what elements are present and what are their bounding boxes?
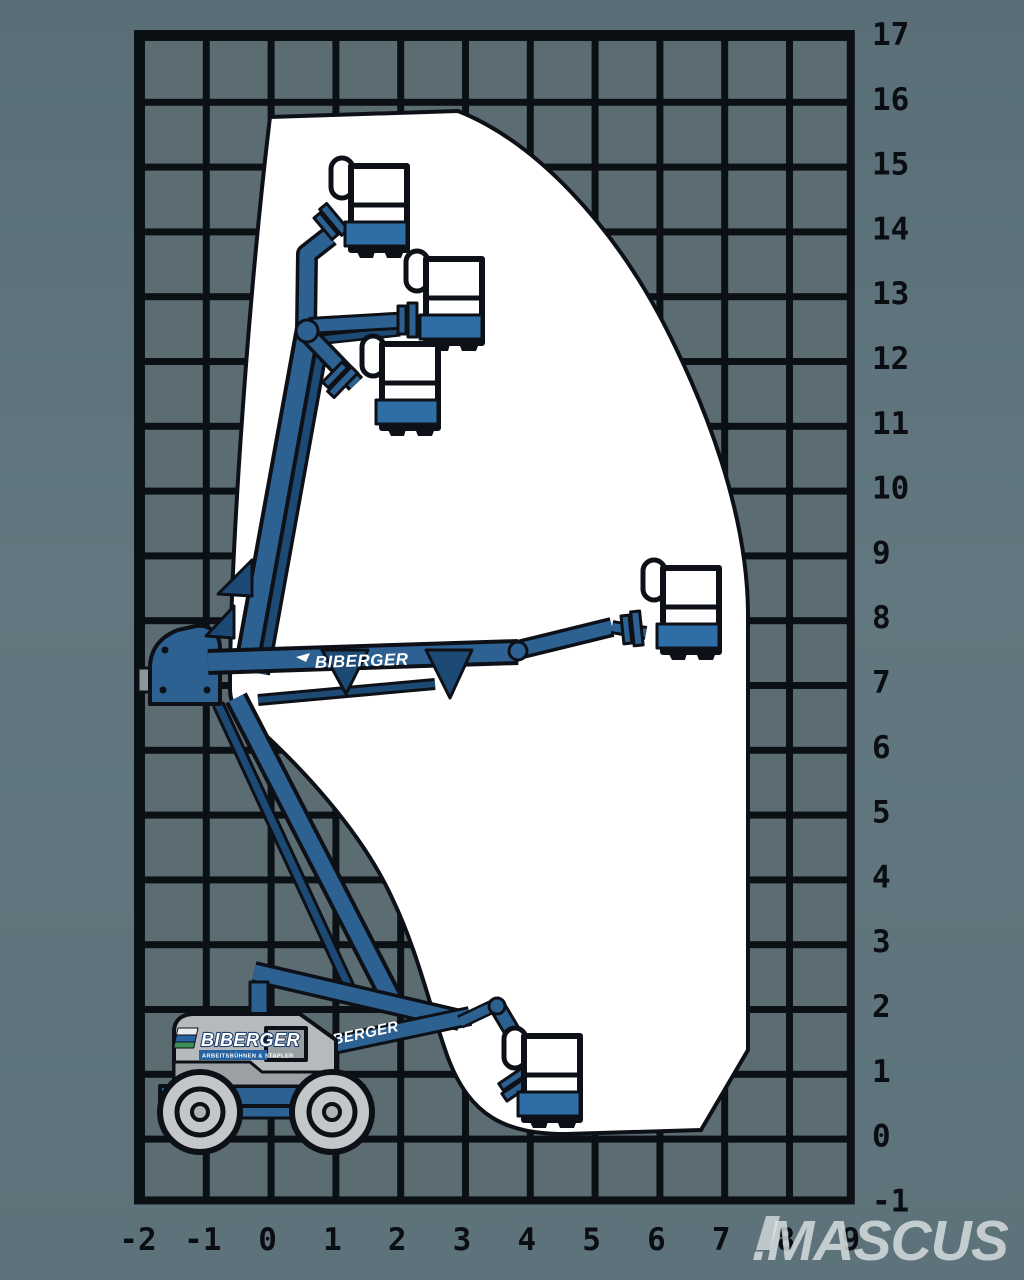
biberger-chassis-logo: BIBERGER [201, 1030, 300, 1050]
biberger-tagline: ARBEITSBÜHNEN & STAPLER [202, 1053, 294, 1060]
axis-label: 15 [872, 147, 909, 183]
watermark-text: .MASCUS [752, 1209, 1009, 1273]
reach-diagram-page: BIBERGER BIBERGER ARBEITSB [0, 0, 1024, 1280]
biberger-emblem [174, 1028, 198, 1048]
axis-label: 4 [872, 859, 891, 895]
axis-label: 1 [323, 1222, 342, 1258]
axis-label: -1 [184, 1222, 221, 1258]
axis-label: 7 [712, 1222, 731, 1258]
bellows [398, 303, 417, 337]
axis-label: -2 [119, 1222, 156, 1258]
axis-label: 2 [872, 989, 891, 1025]
bellows [621, 611, 643, 647]
axis-label: 6 [872, 730, 891, 766]
front-wheel [292, 1072, 372, 1152]
axis-label: 1 [872, 1054, 891, 1090]
axis-label: 13 [872, 276, 909, 312]
biberger-boom-logo-horizontal: BIBERGER [314, 650, 409, 672]
axis-label: 10 [872, 471, 909, 507]
axis-label: 3 [453, 1222, 472, 1258]
axis-label: 2 [388, 1222, 407, 1258]
axis-label: 7 [872, 665, 891, 701]
axis-label: 6 [647, 1222, 666, 1258]
reach-diagram: BIBERGER BIBERGER ARBEITSB [0, 0, 1024, 1280]
axis-label: 4 [517, 1222, 536, 1258]
mascus-watermark: .MASCUS [752, 1209, 1009, 1273]
axis-label: 11 [872, 406, 909, 442]
axis-label: 12 [872, 341, 909, 377]
axis-label: 16 [872, 82, 909, 118]
axis-label: 9 [872, 535, 891, 571]
axis-label: 14 [872, 211, 909, 247]
axis-label: 5 [872, 795, 891, 831]
axis-label: 3 [872, 924, 891, 960]
rear-wheel [160, 1072, 240, 1152]
axis-label: 17 [872, 17, 909, 53]
axis-label: 0 [258, 1222, 277, 1258]
axis-label: 8 [872, 600, 891, 636]
axis-label: 5 [582, 1222, 601, 1258]
axis-label: 0 [872, 1119, 891, 1155]
